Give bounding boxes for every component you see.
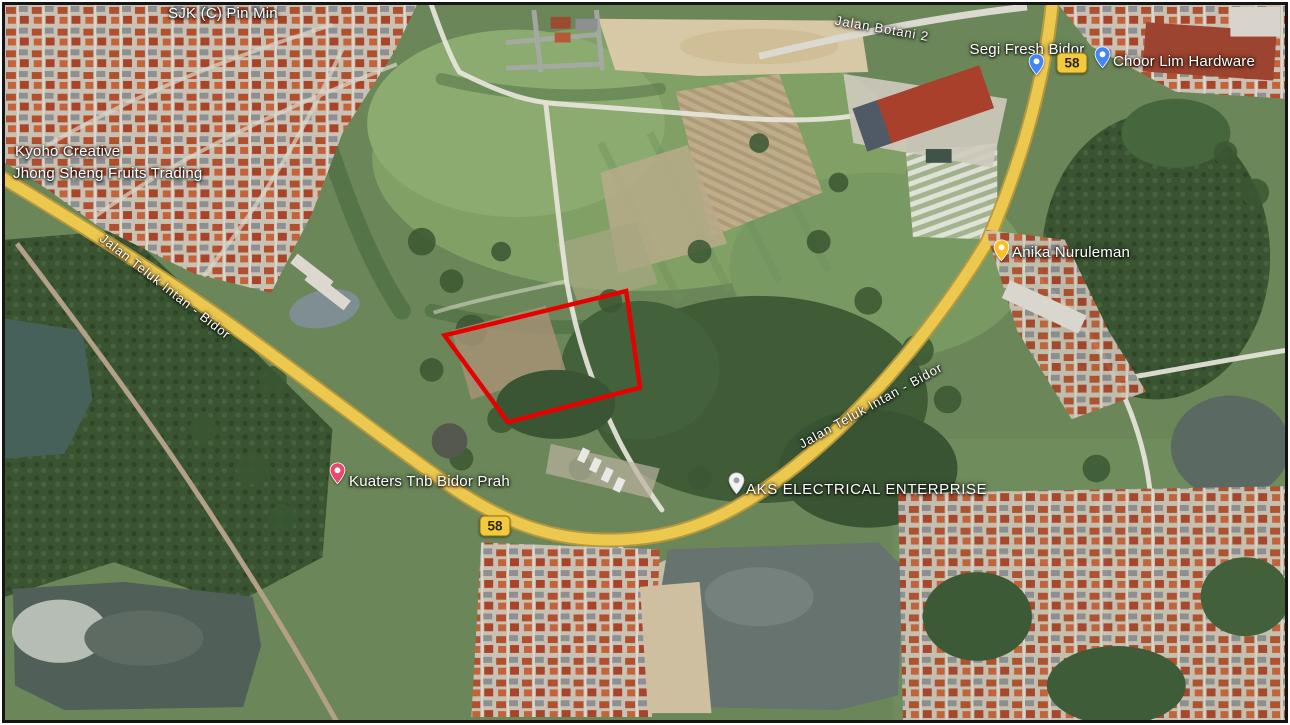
satellite-map[interactable]: SJK (C) Pin Min Kyoho Creative Jhong She… (2, 2, 1288, 723)
kuaters-tnb-bidor-prah-pin[interactable] (329, 462, 346, 485)
segi-fresh-bidor-pin[interactable] (1028, 53, 1045, 76)
anika-nuruleman-pin[interactable] (993, 239, 1010, 262)
route-shield-58-top: 58 (1056, 53, 1087, 74)
choor-lim-hardware-pin[interactable] (1094, 46, 1111, 69)
route-shield-58-bottom: 58 (479, 516, 510, 537)
place-label-sjk-pin-min[interactable]: SJK (C) Pin Min (168, 6, 278, 23)
place-label-choor-lim-hardware[interactable]: Choor Lim Hardware (1113, 54, 1255, 71)
figure-border: SJK (C) Pin Min Kyoho Creative Jhong She… (0, 0, 1290, 725)
place-label-anika-nuruleman[interactable]: Anika Nuruleman (1012, 245, 1130, 262)
place-label-aks-electrical-enterprise[interactable]: AKS ELECTRICAL ENTERPRISE (746, 482, 987, 499)
satellite-imagery (5, 5, 1285, 720)
place-label-kyoho-creative[interactable]: Kyoho Creative (15, 144, 120, 161)
place-label-jhong-sheng-fruits-trading[interactable]: Jhong Sheng Fruits Trading (13, 166, 202, 183)
aks-electrical-enterprise-pin[interactable] (728, 472, 745, 495)
place-label-kuaters-tnb-bidor-prah[interactable]: Kuaters Tnb Bidor Prah (349, 474, 510, 491)
